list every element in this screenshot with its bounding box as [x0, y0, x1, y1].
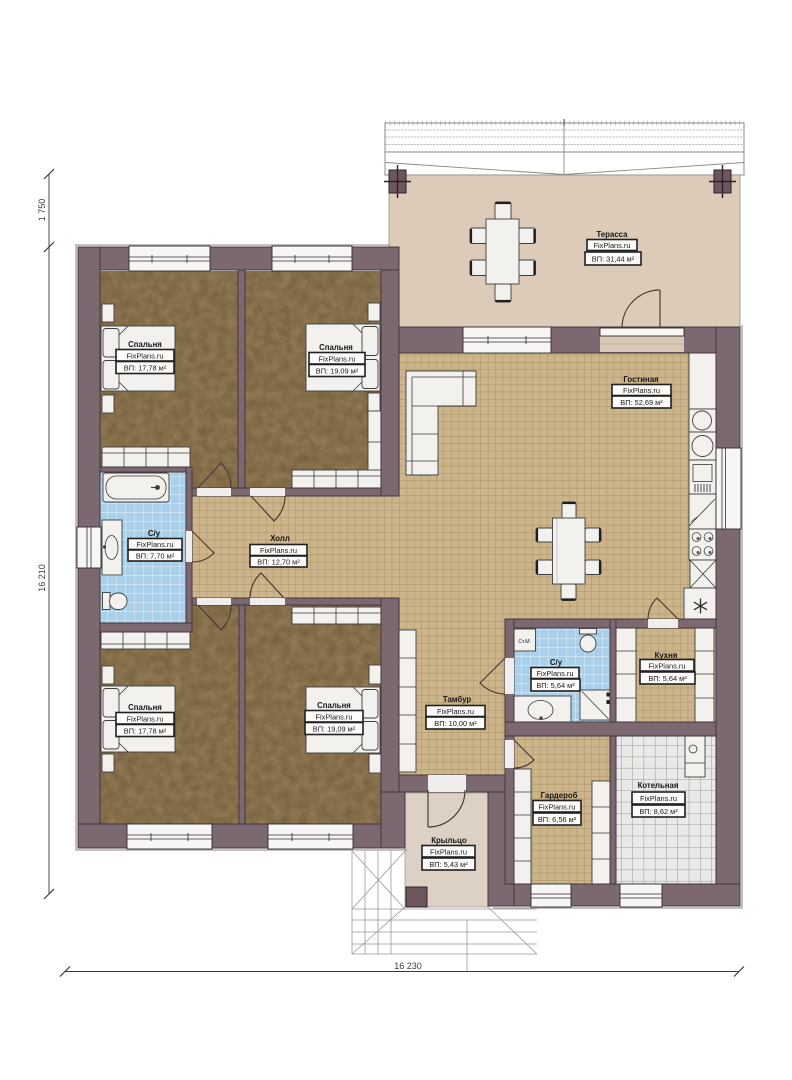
svg-text:Спальня: Спальня [128, 703, 162, 712]
svg-text:С/у: С/у [148, 529, 161, 538]
svg-text:ВП: 10,00 м²: ВП: 10,00 м² [434, 719, 477, 728]
svg-text:ВП: 6,56 м²: ВП: 6,56 м² [538, 815, 577, 824]
svg-text:ВП: 52,69 м²: ВП: 52,69 м² [620, 398, 663, 407]
svg-text:Терасса: Терасса [597, 230, 629, 239]
svg-text:Кухня: Кухня [655, 651, 678, 660]
svg-text:16 230: 16 230 [394, 961, 422, 971]
svg-text:ВП: 12,70 м²: ВП: 12,70 м² [257, 558, 300, 567]
svg-text:ВП: 8,62 м²: ВП: 8,62 м² [639, 807, 678, 816]
svg-text:Спальня: Спальня [317, 701, 351, 710]
svg-text:Спальня: Спальня [319, 343, 353, 352]
svg-text:Крыльцо: Крыльцо [431, 836, 467, 845]
svg-text:FixPlans.ru: FixPlans.ru [127, 352, 164, 361]
svg-text:ВП: 19,09 м²: ВП: 19,09 м² [316, 367, 359, 376]
svg-text:FixPlans.ru: FixPlans.ru [260, 546, 297, 555]
svg-text:FixPlans.ru: FixPlans.ru [430, 848, 467, 857]
svg-text:ВП: 19,09 м²: ВП: 19,09 м² [313, 725, 356, 734]
svg-text:Котельная: Котельная [638, 781, 679, 790]
svg-text:ВП: 17,78 м²: ВП: 17,78 м² [124, 727, 167, 736]
svg-text:Гостиная: Гостиная [623, 375, 658, 384]
svg-text:FixPlans.ru: FixPlans.ru [649, 662, 686, 671]
svg-text:Холл: Холл [270, 534, 290, 543]
svg-text:FixPlans.ru: FixPlans.ru [437, 707, 474, 716]
svg-text:ВП: 5,64 м²: ВП: 5,64 м² [648, 674, 687, 683]
svg-text:FixPlans.ru: FixPlans.ru [539, 803, 576, 812]
svg-text:1 750: 1 750 [37, 199, 47, 222]
svg-text:FixPlans.ru: FixPlans.ru [640, 794, 677, 803]
svg-text:Ст.М.: Ст.М. [518, 639, 531, 645]
svg-text:FixPlans.ru: FixPlans.ru [537, 669, 574, 678]
svg-text:ВП: 5,43 м²: ВП: 5,43 м² [429, 860, 468, 869]
svg-text:FixPlans.ru: FixPlans.ru [319, 355, 356, 364]
svg-text:ВП: 7,70 м²: ВП: 7,70 м² [136, 552, 175, 561]
svg-text:Тамбур: Тамбур [443, 695, 472, 704]
svg-text:16 210: 16 210 [37, 564, 47, 592]
svg-text:ВП: 17,78 м²: ВП: 17,78 м² [124, 364, 167, 373]
svg-text:FixPlans.ru: FixPlans.ru [594, 241, 631, 250]
svg-text:FixPlans.ru: FixPlans.ru [137, 540, 174, 549]
svg-text:FixPlans.ru: FixPlans.ru [623, 386, 660, 395]
svg-text:Гардероб: Гардероб [541, 791, 578, 800]
svg-text:Спальня: Спальня [128, 340, 162, 349]
svg-text:ВП: 5,64 м²: ВП: 5,64 м² [536, 681, 575, 690]
svg-text:FixPlans.ru: FixPlans.ru [316, 713, 353, 722]
svg-text:С/у: С/у [550, 658, 563, 667]
svg-text:ВП: 31,44 м²: ВП: 31,44 м² [592, 255, 635, 264]
svg-text:FixPlans.ru: FixPlans.ru [127, 715, 164, 724]
